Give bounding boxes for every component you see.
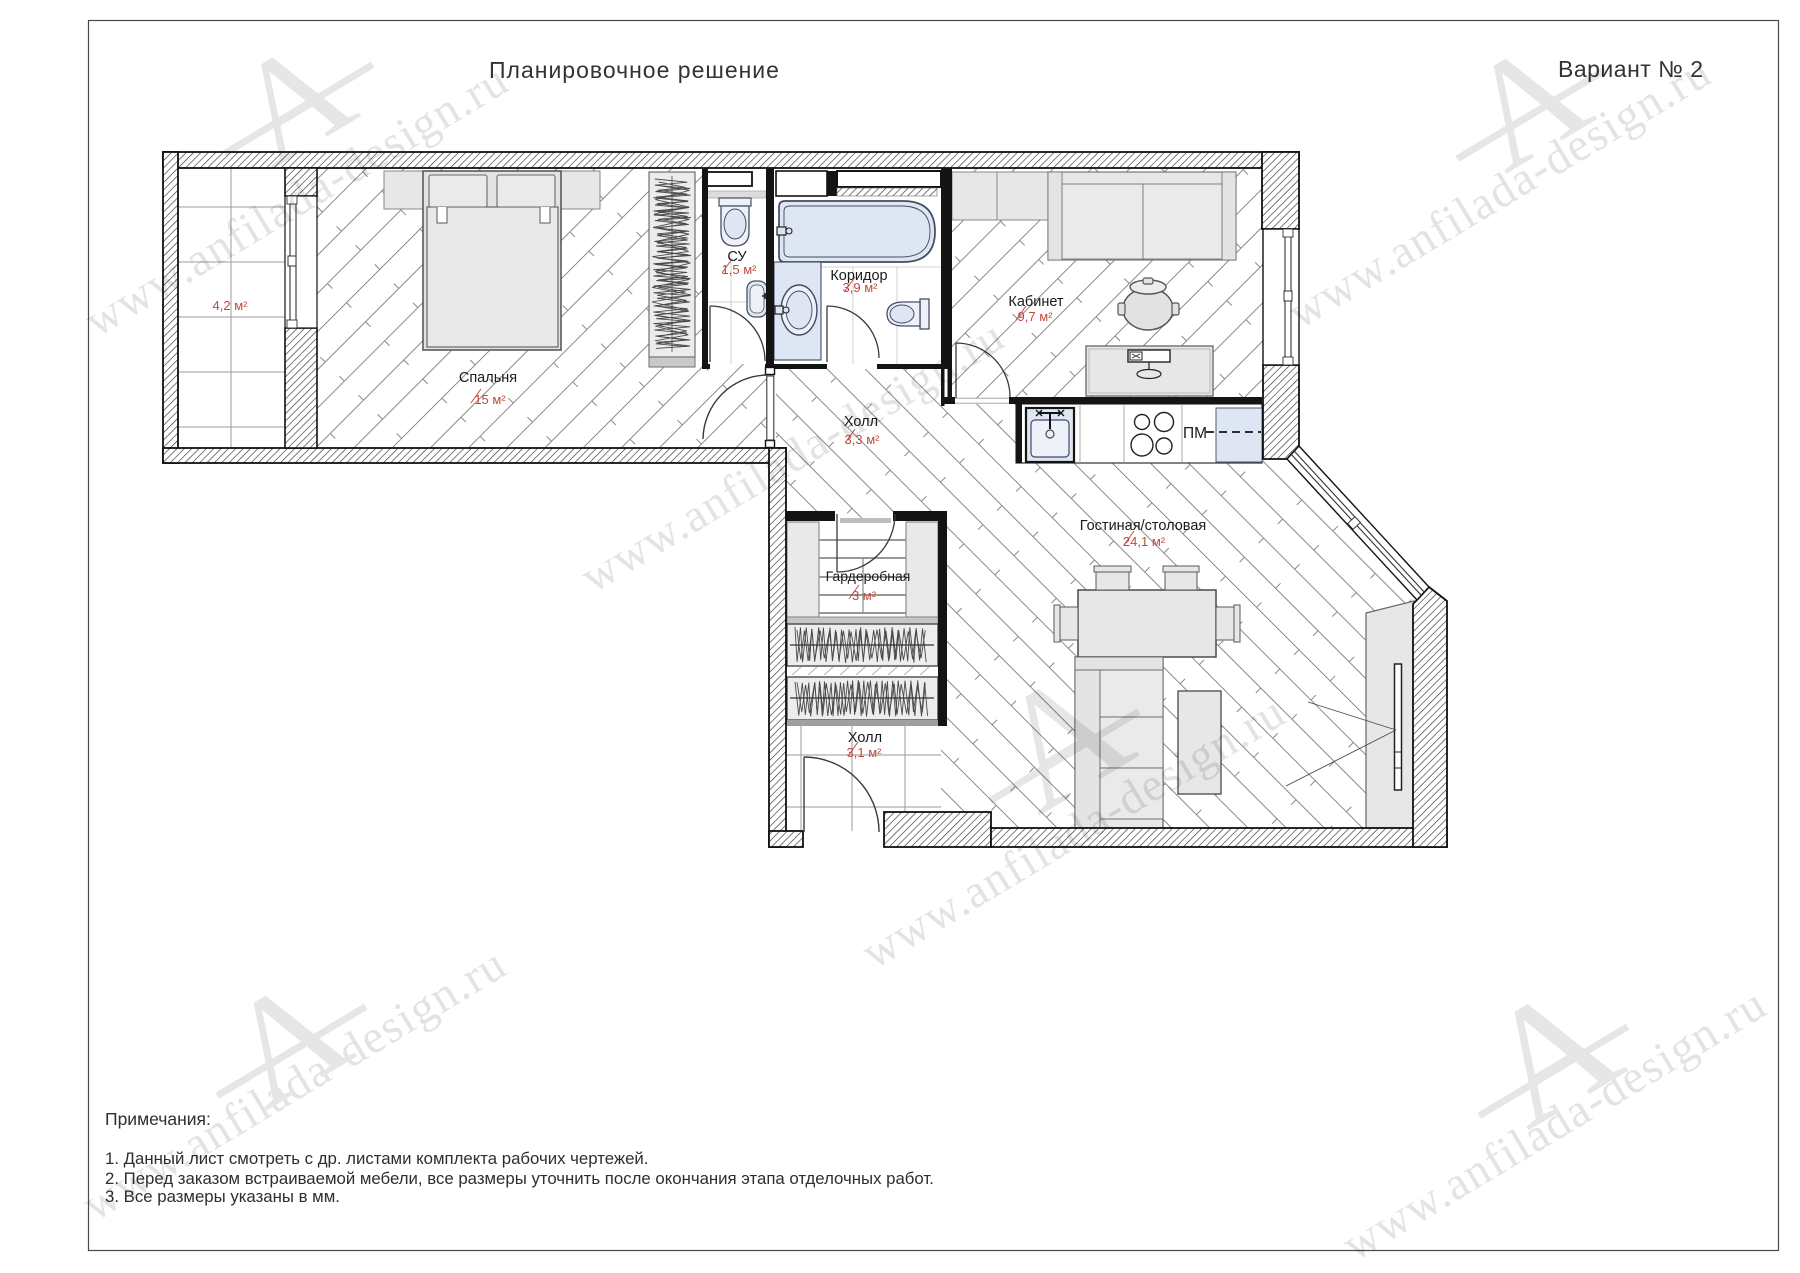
svg-text:9,7 м²: 9,7 м² (1018, 309, 1054, 324)
svg-text:24,1 м²: 24,1 м² (1123, 534, 1166, 549)
svg-text:3,1 м²: 3,1 м² (847, 745, 883, 760)
svg-text:Гостиная/столовая: Гостиная/столовая (1080, 518, 1207, 534)
svg-text:Кабинет: Кабинет (1008, 294, 1064, 310)
svg-text:15 м²: 15 м² (474, 392, 506, 407)
svg-text:Планировочное решение: Планировочное решение (489, 57, 780, 83)
svg-text:A: A (1451, 944, 1647, 1162)
svg-text:4,2 м²: 4,2 м² (213, 298, 249, 313)
svg-text:Холл: Холл (848, 730, 882, 746)
svg-text:Гардеробная: Гардеробная (826, 568, 911, 584)
svg-text:2. Перед заказом встраиваемой: 2. Перед заказом встраиваемой мебели, вс… (105, 1169, 934, 1188)
svg-text:1,5 м²: 1,5 м² (722, 262, 758, 277)
svg-text:Спальня: Спальня (459, 370, 517, 386)
svg-text:A: A (1437, 5, 1615, 203)
svg-text:ПМ: ПМ (1183, 425, 1207, 442)
